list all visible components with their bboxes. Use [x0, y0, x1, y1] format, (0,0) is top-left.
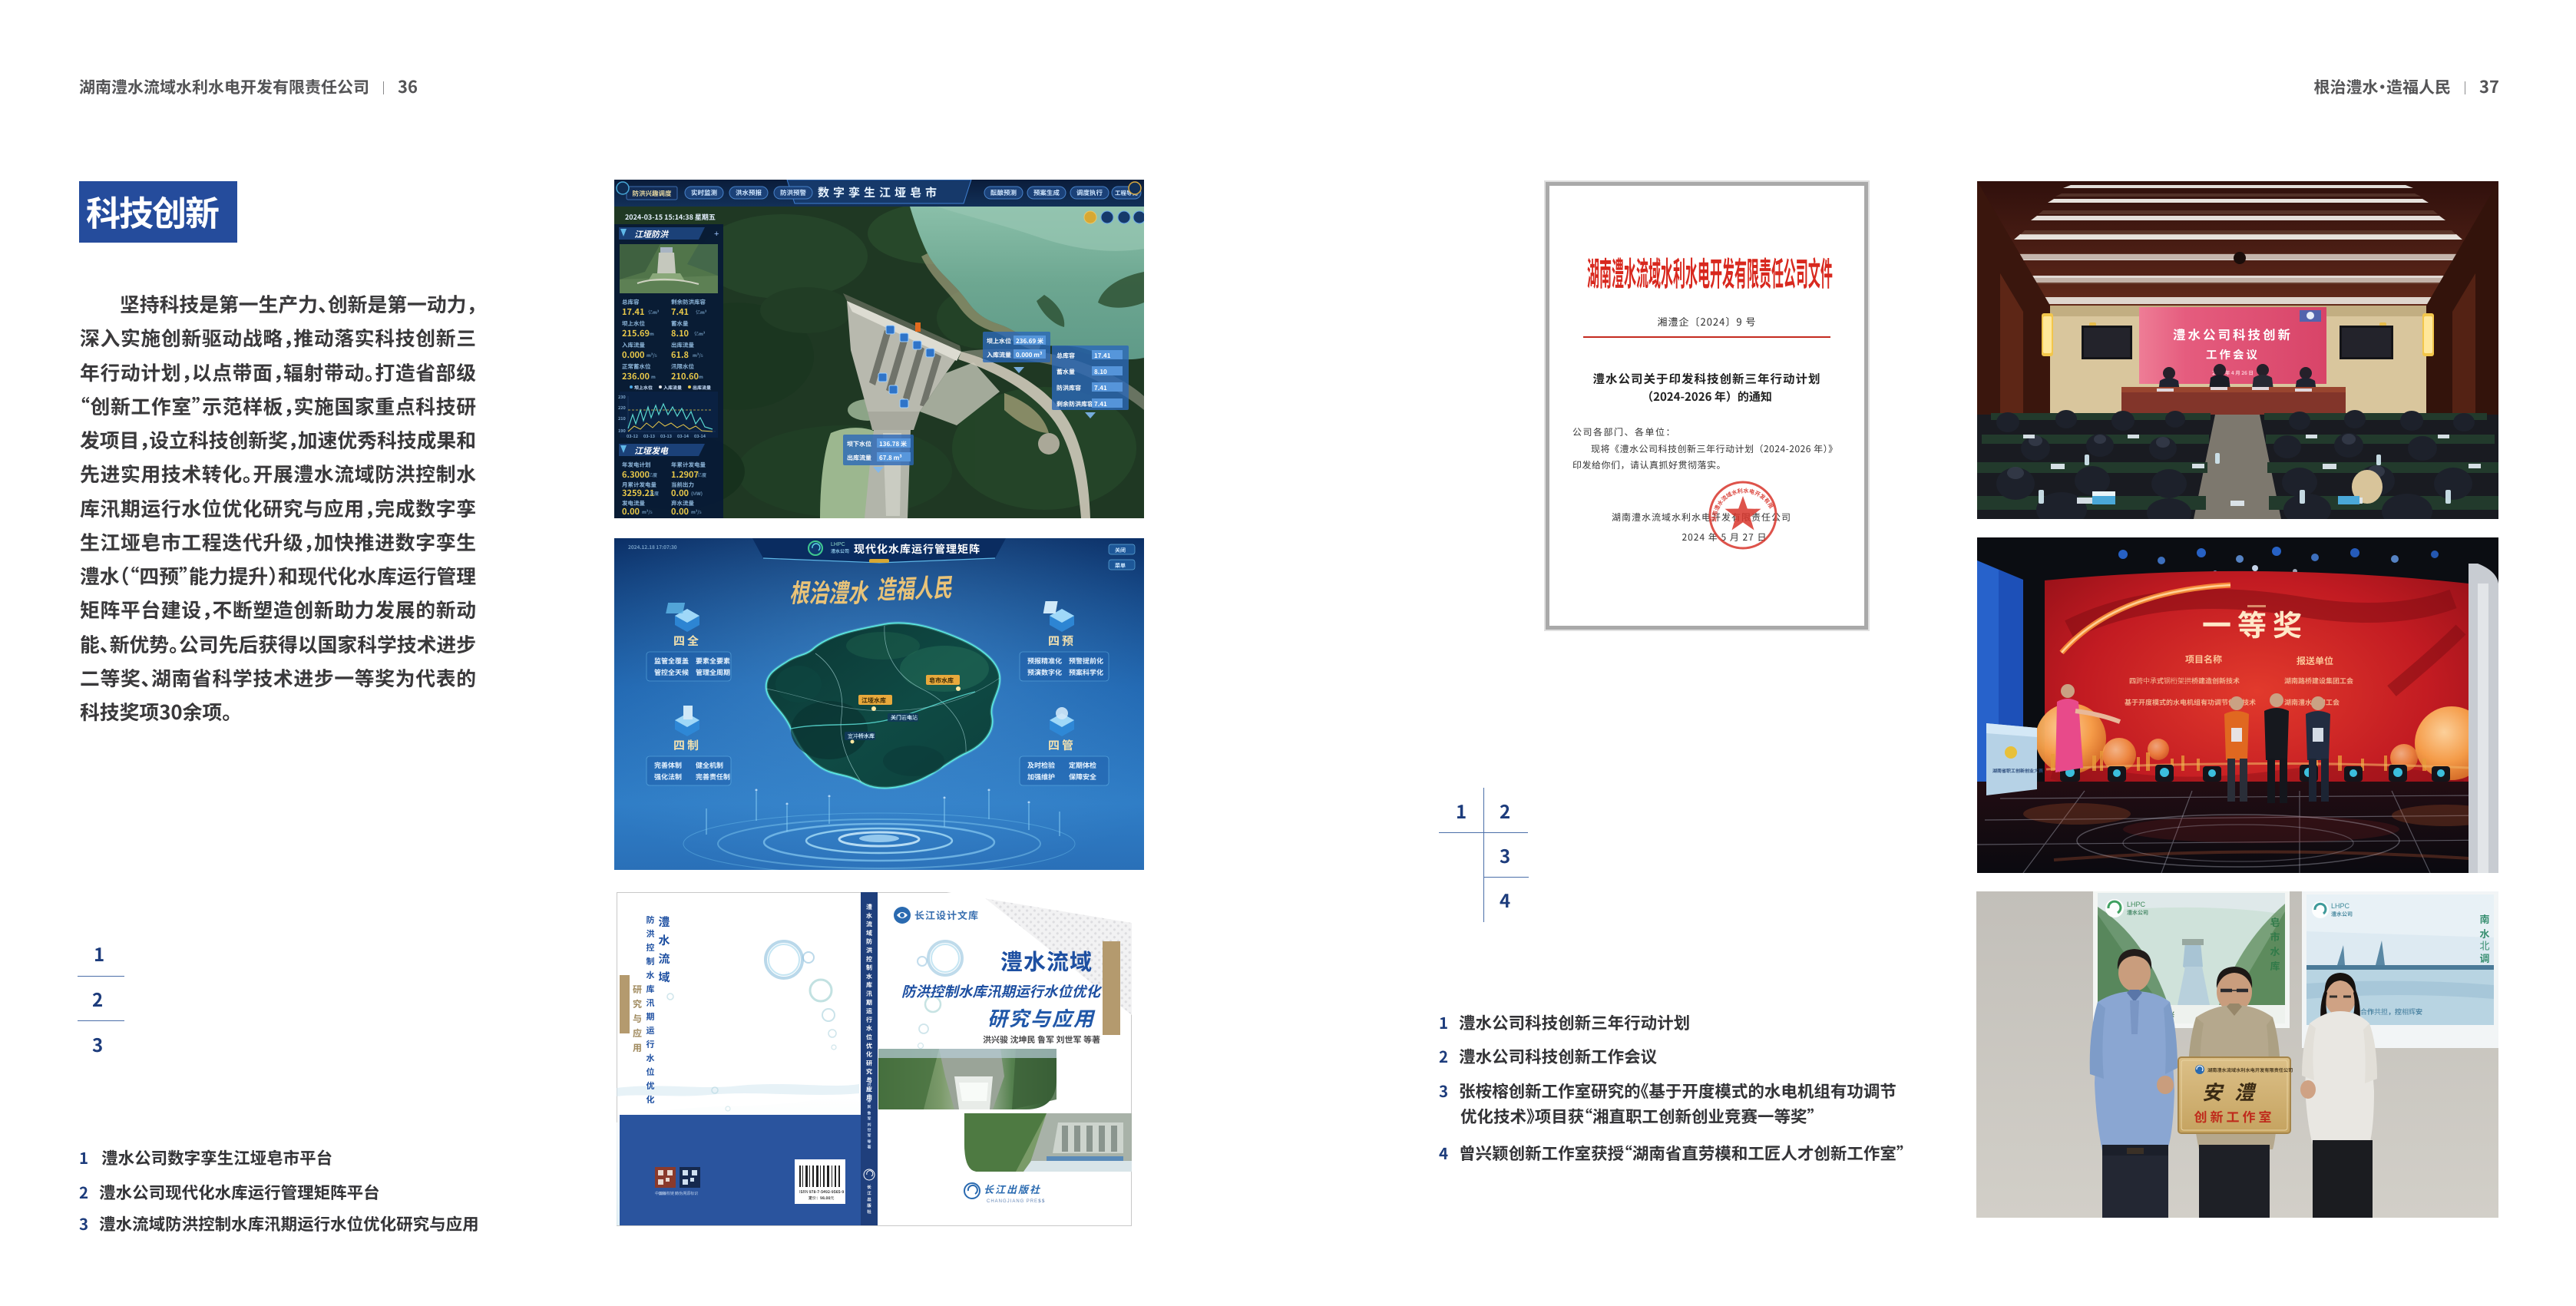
svg-text:190: 190: [618, 428, 626, 434]
svg-text:m³/s: m³/s: [691, 508, 702, 515]
svg-text:四管: 四管: [1048, 737, 1076, 753]
svg-text:预报精准化 预警提前化: 预报精准化 预警提前化: [1027, 656, 1103, 666]
svg-text:调度执行: 调度执行: [1076, 188, 1103, 197]
svg-text:8.10: 8.10: [671, 327, 689, 339]
svg-text:7.41: 7.41: [1094, 400, 1107, 408]
svg-text:安澧: 安澧: [2202, 1077, 2267, 1106]
svg-text:合作共担，控相辉安: 合作共担，控相辉安: [2360, 1007, 2422, 1017]
svg-text:7.41: 7.41: [671, 306, 689, 318]
svg-text:四全: 四全: [673, 633, 701, 649]
svg-text:湖南澧水流域水利水电开发有限责任公司: 湖南澧水流域水利水电开发有限责任公司: [2207, 1066, 2293, 1073]
svg-text:防洪库容: 防洪库容: [1057, 384, 1081, 392]
svg-text:03-12: 03-12: [627, 433, 638, 439]
svg-text:湖南路桥建设集团工会: 湖南路桥建设集团工会: [2284, 676, 2353, 686]
svg-text:实时监测: 实时监测: [691, 188, 717, 197]
svg-text:2024-03-15 15:14:38 星期五: 2024-03-15 15:14:38 星期五: [625, 212, 716, 222]
svg-text:出库流量: 出库流量: [693, 384, 711, 391]
svg-text:湖南省职工创新创业大赛: 湖南省职工创新创业大赛: [1992, 767, 2043, 774]
svg-text:定价：98.00元: 定价：98.00元: [809, 1195, 834, 1201]
svg-text:澧水公司: 澧水公司: [2127, 909, 2148, 917]
svg-text:报送单位: 报送单位: [2297, 654, 2333, 667]
svg-text:236.00: 236.00: [622, 370, 650, 382]
svg-text:监管全覆盖 要素全要素: 监管全覆盖 要素全要素: [654, 656, 730, 666]
svg-text:17.41: 17.41: [622, 306, 645, 318]
svg-text:6.3000: 6.3000: [622, 468, 650, 481]
svg-text:造福人民: 造福人民: [876, 567, 954, 607]
svg-text:215.69: 215.69: [622, 327, 650, 339]
svg-text:江垭水库: 江垭水库: [861, 696, 886, 705]
svg-text:2024.12.18 17:07:30: 2024.12.18 17:07:30: [628, 543, 677, 551]
svg-text:m³/s: m³/s: [646, 352, 657, 359]
svg-text:数字孪生江垭皂市: 数字孪生江垭皂市: [818, 184, 941, 200]
svg-text:坝下水位: 坝下水位: [847, 440, 871, 448]
svg-text:0.000: 0.000: [622, 349, 645, 361]
svg-text:管控全天候 管理全周期: 管控全天候 管理全周期: [654, 667, 730, 677]
svg-text:m: m: [699, 373, 703, 380]
svg-text:210: 210: [618, 415, 626, 422]
svg-text:万度: 万度: [650, 490, 659, 497]
svg-text:长江设计文库: 长江设计文库: [914, 908, 979, 922]
svg-text:长江出版社: 长江出版社: [984, 1182, 1041, 1196]
svg-text:研究与应用: 研究与应用: [631, 983, 644, 1056]
svg-text:230: 230: [618, 394, 626, 400]
svg-text:03-14: 03-14: [677, 433, 689, 439]
svg-text:防洪控制水库汛期运行水位优化: 防洪控制水库汛期运行水位优化: [901, 981, 1103, 1001]
svg-text:220: 220: [618, 405, 626, 411]
svg-text:总库容: 总库容: [1057, 352, 1075, 360]
svg-text:蓄水量: 蓄水量: [1057, 368, 1075, 376]
svg-text:江垭发电: 江垭发电: [634, 445, 669, 457]
svg-text:0.000 m³: 0.000 m³: [1016, 351, 1042, 359]
svg-text:入库流量: 入库流量: [663, 384, 682, 391]
svg-text:坝上水位: 坝上水位: [634, 384, 653, 391]
svg-text:中国版权链 防伪溯源标识: 中国版权链 防伪溯源标识: [655, 1191, 698, 1196]
svg-text:0.00: 0.00: [622, 505, 640, 517]
svg-text:皂市水库: 皂市水库: [2268, 914, 2283, 973]
svg-text:完善体制 健全机制: 完善体制 健全机制: [654, 760, 723, 770]
svg-text:洪兴骏 沈坤民 鲁军 刘世军 等著: 洪兴骏 沈坤民 鲁军 刘世军 等著: [983, 1033, 1100, 1046]
svg-text:酝酿预测: 酝酿预测: [990, 188, 1017, 197]
svg-text:+: +: [714, 227, 719, 240]
svg-text:根治澧水: 根治澧水: [789, 573, 869, 610]
svg-text:预案生成: 预案生成: [1033, 188, 1060, 197]
svg-text:四预: 四预: [1048, 633, 1076, 649]
svg-text:03-14: 03-14: [694, 433, 706, 439]
svg-text:亿m³: 亿m³: [648, 309, 660, 316]
svg-text:洪兴骏 沈坤民 鲁军 刘世军 等著: 洪兴骏 沈坤民 鲁军 刘世军 等著: [867, 1076, 872, 1150]
svg-text:一等奖: 一等奖: [2202, 602, 2308, 644]
svg-text:亿m³: 亿m³: [696, 309, 707, 316]
svg-text:防洪兴趣调度: 防洪兴趣调度: [632, 189, 672, 198]
svg-text:236.69 米: 236.69 米: [1016, 337, 1043, 346]
svg-text:长江出版社: 长江出版社: [866, 1184, 872, 1215]
svg-text:亿m³: 亿m³: [694, 330, 706, 337]
svg-text:菜单: 菜单: [1115, 562, 1126, 570]
svg-text:67.8 m³: 67.8 m³: [879, 454, 902, 462]
svg-text:创新工作室: 创新工作室: [2194, 1106, 2275, 1126]
svg-text:03-13: 03-13: [643, 433, 655, 439]
svg-text:CHANGJIANG PRESS: CHANGJIANG PRESS: [987, 1197, 1046, 1204]
svg-text:现代化水库运行管理矩阵: 现代化水库运行管理矩阵: [854, 541, 980, 557]
svg-text:坝上水位: 坝上水位: [987, 337, 1011, 346]
svg-text:项目名称: 项目名称: [2185, 653, 2222, 666]
svg-text:17.41: 17.41: [1094, 352, 1111, 360]
svg-text:210.60: 210.60: [671, 370, 699, 382]
svg-text:澧水流域: 澧水流域: [1000, 944, 1093, 977]
svg-text:加强维护 保障安全: 加强维护 保障安全: [1027, 772, 1096, 782]
svg-text:关闭: 关闭: [1115, 547, 1126, 554]
svg-text:入库流量: 入库流量: [987, 351, 1011, 359]
svg-text:防洪控制水库汛期运行水位优化: 防洪控制水库汛期运行水位优化: [644, 914, 656, 1107]
svg-text:洪水预报: 洪水预报: [736, 188, 762, 197]
svg-text:0.00: 0.00: [671, 487, 689, 499]
svg-text:7.41: 7.41: [1094, 384, 1107, 392]
svg-text:皂市水库: 皂市水库: [929, 676, 954, 685]
svg-text:澧水流域防洪控制水库汛期运行水位优化研究与应用: 澧水流域防洪控制水库汛期运行水位优化研究与应用: [865, 903, 874, 1103]
svg-text:防洪预警: 防洪预警: [780, 188, 807, 197]
svg-text:澧水流域: 澧水流域: [656, 914, 673, 987]
svg-text:四跨中承式钢桁架拱桥建造创新技术: 四跨中承式钢桁架拱桥建造创新技术: [2129, 676, 2240, 686]
svg-text:研究与应用: 研究与应用: [987, 1003, 1096, 1032]
svg-text:136.78 米: 136.78 米: [879, 440, 907, 448]
svg-text:ISBN 978-7-5492-9565-9: ISBN 978-7-5492-9565-9: [799, 1189, 844, 1195]
svg-text:澧水公司: 澧水公司: [831, 547, 849, 554]
svg-text:工作会议: 工作会议: [2206, 346, 2260, 362]
svg-text:澧水公司: 澧水公司: [2331, 911, 2353, 918]
svg-text:四制: 四制: [673, 737, 701, 753]
svg-text:1.2907: 1.2907: [671, 468, 699, 481]
svg-text:m: m: [650, 330, 654, 337]
svg-text:8.10: 8.10: [1094, 368, 1107, 376]
svg-text:m: m: [651, 373, 656, 380]
svg-text:剩余防洪库容: 剩余防洪库容: [1057, 400, 1093, 408]
svg-text:宜冲桥水库: 宜冲桥水库: [848, 732, 875, 740]
svg-text:关门岩电站: 关门岩电站: [891, 714, 918, 722]
svg-text:亿度: 亿度: [697, 471, 706, 478]
svg-text:61.8: 61.8: [671, 349, 689, 361]
svg-text:LHPC: LHPC: [2127, 899, 2146, 909]
svg-text:及时检验 定期体检: 及时检验 定期体检: [1027, 760, 1096, 770]
svg-text:出库流量: 出库流量: [847, 454, 871, 462]
svg-text:0.00: 0.00: [671, 505, 689, 517]
svg-text:(MW): (MW): [691, 490, 703, 497]
svg-text:澧水公司科技创新: 澧水公司科技创新: [2173, 325, 2293, 343]
svg-text:江垭防洪: 江垭防洪: [634, 228, 670, 240]
svg-text:LHPC: LHPC: [2331, 901, 2350, 911]
svg-text:亿度: 亿度: [648, 471, 657, 478]
svg-text:03-13: 03-13: [660, 433, 672, 439]
svg-text:m³/s: m³/s: [642, 508, 653, 515]
svg-text:强化法制 完善责任制: 强化法制 完善责任制: [654, 772, 730, 782]
svg-text:预演数字化 预案科学化: 预演数字化 预案科学化: [1027, 667, 1103, 677]
svg-text:南水北调: 南水北调: [2478, 911, 2492, 965]
svg-text:m³/s: m³/s: [693, 352, 703, 359]
